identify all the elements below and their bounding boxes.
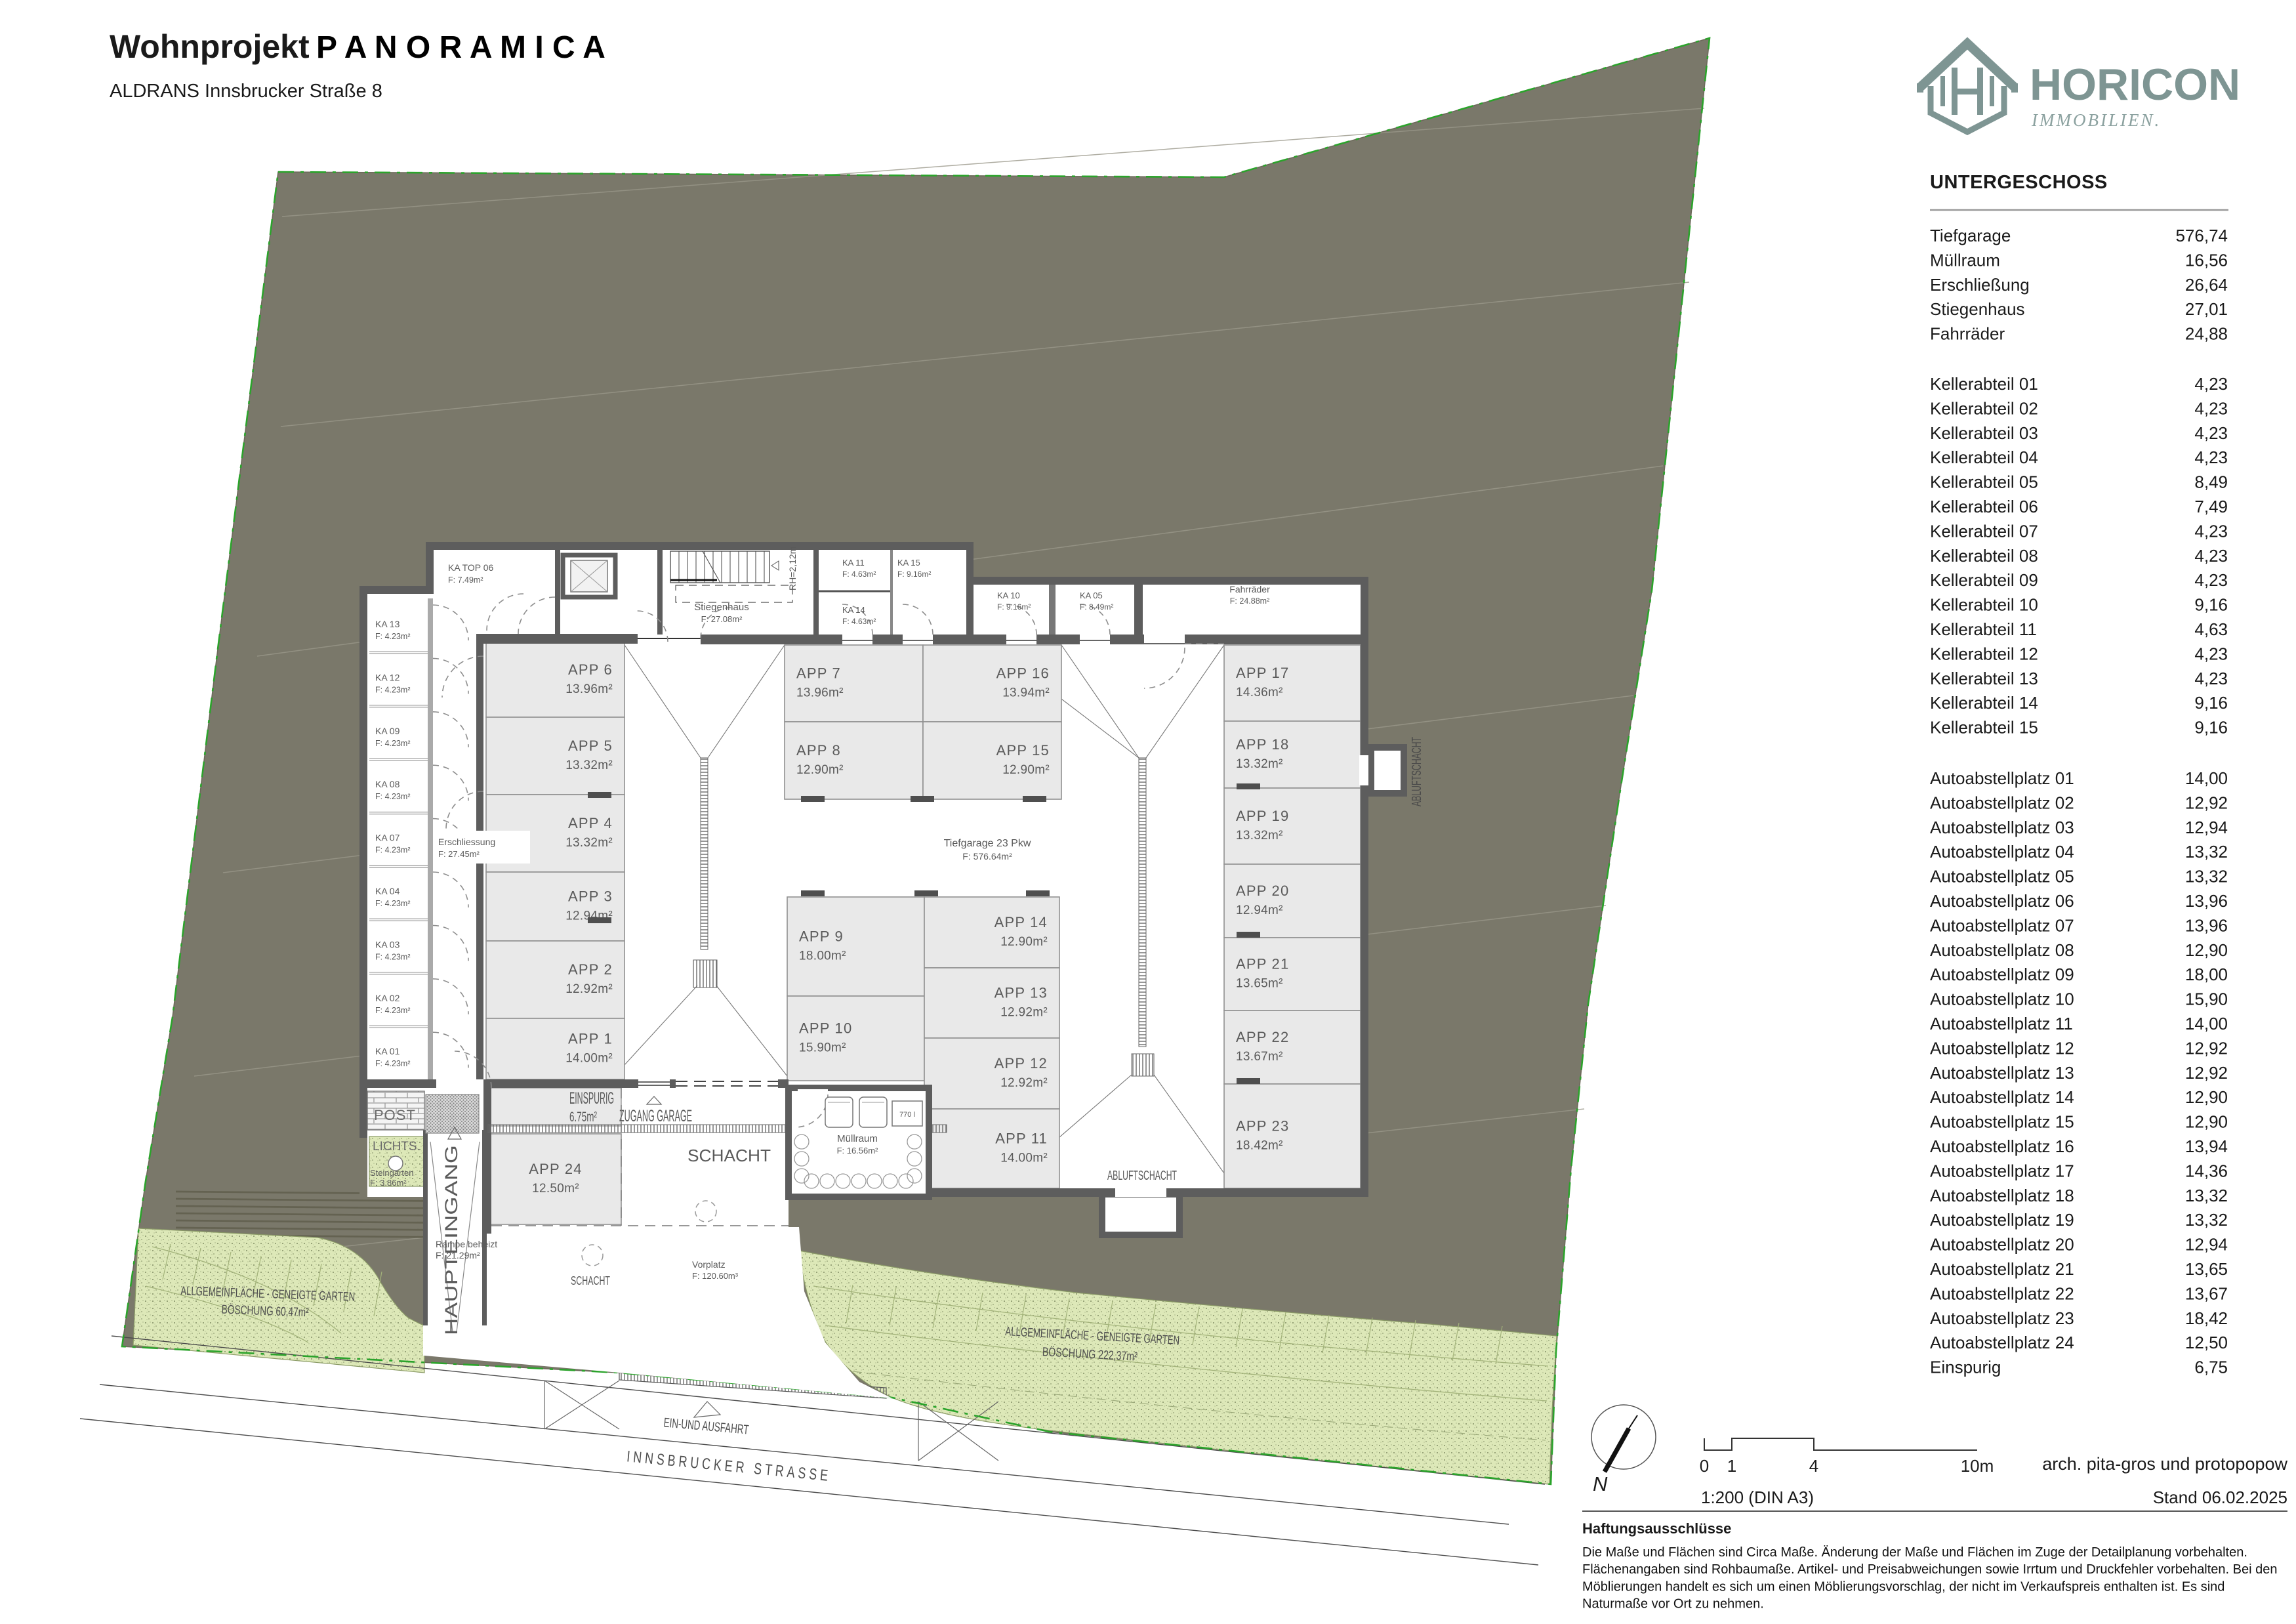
svg-text:0: 0: [1700, 1456, 1709, 1476]
svg-text:F: 9.16m²: F: 9.16m²: [997, 602, 1031, 612]
svg-text:8,49: 8,49: [2194, 472, 2228, 492]
svg-text:ABLUFTSCHACHT: ABLUFTSCHACHT: [1410, 737, 1424, 806]
svg-text:F: 576.64m²: F: 576.64m²: [962, 851, 1012, 862]
svg-text:Autoabstellplatz 09: Autoabstellplatz 09: [1930, 965, 2074, 984]
svg-text:Kellerabteil 06: Kellerabteil 06: [1930, 497, 2038, 516]
svg-text:Tiefgarage 23 Pkw: Tiefgarage 23 Pkw: [944, 838, 1031, 849]
svg-text:15.90m²: 15.90m²: [799, 1041, 846, 1055]
svg-text:I N N S B R U C K E R S T R: I N N S B R U C K E R S T R A S S E: [626, 1447, 829, 1484]
svg-text:4,23: 4,23: [2194, 398, 2228, 418]
svg-text:13,96: 13,96: [2185, 915, 2228, 935]
svg-text:F: 7.49m²: F: 7.49m²: [448, 575, 483, 585]
svg-text:Autoabstellplatz 04: Autoabstellplatz 04: [1930, 842, 2074, 862]
svg-text:APP 20: APP 20: [1236, 883, 1289, 899]
svg-text:ALDRANS Innsbrucker Straße 8: ALDRANS Innsbrucker Straße 8: [110, 81, 382, 102]
svg-text:HORICON: HORICON: [2030, 60, 2240, 110]
svg-text:Steingarten: Steingarten: [370, 1168, 414, 1178]
svg-text:F: 16.56m²: F: 16.56m²: [837, 1146, 879, 1156]
svg-text:APP 19: APP 19: [1236, 808, 1289, 824]
svg-text:12,92: 12,92: [2185, 1063, 2228, 1083]
svg-text:APP 15: APP 15: [996, 742, 1050, 759]
svg-text:1: 1: [1727, 1456, 1736, 1476]
svg-text:RH=2,12m: RH=2,12m: [787, 547, 798, 591]
svg-text:12,92: 12,92: [2185, 793, 2228, 812]
svg-text:Autoabstellplatz 14: Autoabstellplatz 14: [1930, 1087, 2074, 1107]
svg-text:Müllraum: Müllraum: [837, 1133, 878, 1144]
svg-text:Die Maße und Flächen sind Circ: Die Maße und Flächen sind Circa Maße. Än…: [1582, 1545, 2247, 1560]
svg-text:13,96: 13,96: [2185, 891, 2228, 911]
svg-text:KA TOP 06: KA TOP 06: [448, 562, 493, 573]
svg-text:4,23: 4,23: [2194, 644, 2228, 663]
svg-text:KA 15: KA 15: [897, 558, 920, 568]
svg-text:4,23: 4,23: [2194, 448, 2228, 467]
svg-text:APP 21: APP 21: [1236, 956, 1289, 972]
svg-text:12,90: 12,90: [2185, 1112, 2228, 1132]
svg-text:24,88: 24,88: [2185, 324, 2228, 344]
svg-text:4,23: 4,23: [2194, 546, 2228, 566]
svg-text:F: 4.23m²: F: 4.23m²: [375, 792, 411, 801]
svg-text:F: 3.86m²: F: 3.86m²: [370, 1178, 407, 1188]
svg-text:26,64: 26,64: [2185, 275, 2228, 295]
svg-text:Autoabstellplatz 07: Autoabstellplatz 07: [1930, 915, 2074, 935]
svg-text:9,16: 9,16: [2194, 693, 2228, 713]
svg-text:Autoabstellplatz 12: Autoabstellplatz 12: [1930, 1038, 2074, 1058]
svg-text:13,32: 13,32: [2185, 1186, 2228, 1205]
svg-text:12,94: 12,94: [2185, 818, 2228, 837]
svg-text:12.92m²: 12.92m²: [1000, 1076, 1048, 1090]
svg-text:Flächenangaben sind Rohbaumaße: Flächenangaben sind Rohbaumaße. Artikel-…: [1582, 1562, 2278, 1577]
svg-text:Autoabstellplatz 17: Autoabstellplatz 17: [1930, 1161, 2074, 1180]
svg-text:APP 2: APP 2: [568, 961, 613, 978]
svg-text:Autoabstellplatz 08: Autoabstellplatz 08: [1930, 940, 2074, 960]
svg-text:APP 9: APP 9: [799, 928, 844, 945]
svg-text:Autoabstellplatz 16: Autoabstellplatz 16: [1930, 1136, 2074, 1156]
svg-text:UNTERGESCHOSS: UNTERGESCHOSS: [1930, 172, 2108, 193]
svg-text:KA 13: KA 13: [375, 619, 400, 629]
svg-text:14.00m²: 14.00m²: [1000, 1152, 1048, 1165]
svg-text:P A N O R A M I C A: P A N O R A M I C A: [316, 30, 605, 65]
svg-text:12.90m²: 12.90m²: [1002, 763, 1050, 777]
svg-text:Kellerabteil 02: Kellerabteil 02: [1930, 398, 2038, 418]
svg-text:KA 09: KA 09: [375, 726, 400, 736]
svg-text:Naturmaße vor Ort zu nehmen.: Naturmaße vor Ort zu nehmen.: [1582, 1597, 1764, 1612]
svg-text:14,36: 14,36: [2185, 1161, 2228, 1180]
svg-text:4,23: 4,23: [2194, 570, 2228, 590]
svg-text:APP 12: APP 12: [994, 1055, 1048, 1072]
svg-text:Rampe beheizt: Rampe beheizt: [436, 1239, 497, 1249]
svg-text:Autoabstellplatz 20: Autoabstellplatz 20: [1930, 1235, 2074, 1255]
svg-text:Autoabstellplatz 23: Autoabstellplatz 23: [1930, 1308, 2074, 1328]
svg-text:Einspurig: Einspurig: [1930, 1358, 2001, 1377]
svg-text:APP 23: APP 23: [1236, 1118, 1289, 1135]
svg-text:ABLUFTSCHACHT: ABLUFTSCHACHT: [1107, 1169, 1177, 1183]
svg-text:APP 4: APP 4: [568, 815, 613, 831]
svg-text:APP 17: APP 17: [1236, 665, 1289, 681]
svg-text:13.94m²: 13.94m²: [1002, 686, 1050, 700]
svg-text:F: 4.23m²: F: 4.23m²: [375, 1059, 411, 1068]
svg-text:7,49: 7,49: [2194, 497, 2228, 516]
svg-text:Autoabstellplatz 21: Autoabstellplatz 21: [1930, 1259, 2074, 1279]
svg-text:14.36m²: 14.36m²: [1236, 686, 1283, 699]
svg-text:13.96m²: 13.96m²: [565, 682, 613, 696]
svg-text:12,50: 12,50: [2185, 1333, 2228, 1352]
svg-text:F: 120.60m³: F: 120.60m³: [692, 1271, 739, 1281]
svg-text:Kellerabteil 01: Kellerabteil 01: [1930, 374, 2038, 394]
svg-text:Kellerabteil 14: Kellerabteil 14: [1930, 693, 2038, 713]
svg-text:Kellerabteil 10: Kellerabteil 10: [1930, 595, 2038, 615]
svg-text:Autoabstellplatz 02: Autoabstellplatz 02: [1930, 793, 2074, 812]
svg-text:APP 24: APP 24: [529, 1161, 582, 1177]
svg-text:9,16: 9,16: [2194, 718, 2228, 738]
svg-text:9,16: 9,16: [2194, 595, 2228, 615]
svg-text:APP 18: APP 18: [1236, 736, 1289, 753]
svg-text:Kellerabteil 04: Kellerabteil 04: [1930, 448, 2038, 467]
svg-text:N: N: [1593, 1472, 1608, 1495]
svg-text:Fahrräder: Fahrräder: [1930, 324, 2005, 344]
svg-text:4: 4: [1809, 1456, 1818, 1476]
svg-text:13,32: 13,32: [2185, 1210, 2228, 1230]
svg-text:KA 01: KA 01: [375, 1046, 400, 1056]
svg-text:KA 03: KA 03: [375, 939, 400, 949]
svg-text:KA 12: KA 12: [375, 672, 400, 682]
svg-text:Möblierungen handelt es sich u: Möblierungen handelt es sich um einen Mö…: [1582, 1579, 2224, 1594]
svg-text:1:200 (DIN A3): 1:200 (DIN A3): [1701, 1488, 1814, 1507]
svg-text:12.50m²: 12.50m²: [532, 1182, 579, 1196]
svg-text:APP 7: APP 7: [796, 665, 841, 682]
svg-text:12.90m²: 12.90m²: [796, 763, 844, 777]
svg-text:Kellerabteil 12: Kellerabteil 12: [1930, 644, 2038, 663]
svg-text:13.32m²: 13.32m²: [1236, 757, 1283, 771]
svg-text:KA 07: KA 07: [375, 833, 400, 843]
svg-text:12,90: 12,90: [2185, 1087, 2228, 1107]
svg-text:ZUGANG GARAGE: ZUGANG GARAGE: [619, 1107, 692, 1125]
svg-text:4,23: 4,23: [2194, 669, 2228, 688]
svg-text:F: 4.23m²: F: 4.23m²: [375, 739, 411, 748]
svg-text:770 l: 770 l: [899, 1111, 915, 1119]
svg-text:Autoabstellplatz 11: Autoabstellplatz 11: [1930, 1014, 2073, 1033]
svg-text:Autoabstellplatz 10: Autoabstellplatz 10: [1930, 989, 2074, 1009]
svg-text:Autoabstellplatz 03: Autoabstellplatz 03: [1930, 818, 2074, 837]
svg-text:Autoabstellplatz 01: Autoabstellplatz 01: [1930, 768, 2074, 788]
svg-text:KA 10: KA 10: [997, 591, 1020, 600]
svg-text:Autoabstellplatz 22: Autoabstellplatz 22: [1930, 1283, 2074, 1303]
svg-text:F: 4.23m²: F: 4.23m²: [375, 632, 411, 641]
svg-text:SCHACHT: SCHACHT: [571, 1274, 610, 1287]
svg-text:12,94: 12,94: [2185, 1235, 2228, 1255]
svg-text:13,94: 13,94: [2185, 1136, 2228, 1156]
svg-text:APP 16: APP 16: [996, 665, 1050, 682]
svg-text:13.96m²: 13.96m²: [796, 686, 844, 700]
svg-text:Autoabstellplatz 19: Autoabstellplatz 19: [1930, 1210, 2074, 1230]
svg-text:14.00m²: 14.00m²: [565, 1052, 613, 1066]
svg-text:13.67m²: 13.67m²: [1236, 1050, 1283, 1064]
svg-text:4,23: 4,23: [2194, 521, 2228, 541]
svg-text:APP 1: APP 1: [568, 1031, 613, 1047]
svg-text:4,23: 4,23: [2194, 423, 2228, 443]
svg-text:F: 8.49m²: F: 8.49m²: [1080, 602, 1113, 612]
svg-text:4,63: 4,63: [2194, 619, 2228, 639]
svg-text:Erschließung: Erschließung: [1930, 275, 2030, 295]
svg-text:6.75m²: 6.75m²: [569, 1110, 597, 1125]
svg-text:arch. pita-gros und protopopow: arch. pita-gros und protopopow: [2042, 1454, 2287, 1474]
svg-text:F: 4.23m²: F: 4.23m²: [375, 952, 411, 961]
svg-text:KA 02: KA 02: [375, 993, 400, 1003]
svg-text:Wohnprojekt: Wohnprojekt: [110, 28, 310, 65]
svg-text:KA 08: KA 08: [375, 779, 400, 789]
svg-text:IMMOBILIEN.: IMMOBILIEN.: [2031, 110, 2161, 130]
svg-text:APP 13: APP 13: [994, 985, 1048, 1001]
svg-text:LICHTS.: LICHTS.: [373, 1140, 420, 1154]
svg-text:16,56: 16,56: [2185, 250, 2228, 270]
svg-text:13,65: 13,65: [2185, 1259, 2228, 1279]
svg-text:KA 11: KA 11: [842, 558, 865, 568]
svg-text:APP 3: APP 3: [568, 888, 613, 905]
svg-text:KA 05: KA 05: [1080, 591, 1103, 600]
svg-text:F: 4.63m²: F: 4.63m²: [842, 570, 876, 579]
svg-text:KA 04: KA 04: [375, 886, 400, 896]
svg-text:Müllraum: Müllraum: [1930, 250, 2000, 270]
svg-text:Autoabstellplatz 15: Autoabstellplatz 15: [1930, 1112, 2074, 1132]
svg-text:Autoabstellplatz 24: Autoabstellplatz 24: [1930, 1333, 2074, 1352]
svg-text:F: 27.08m²: F: 27.08m²: [701, 614, 743, 624]
svg-text:18,00: 18,00: [2185, 965, 2228, 984]
svg-text:10m: 10m: [1961, 1456, 1994, 1476]
svg-text:Tiefgarage: Tiefgarage: [1930, 226, 2011, 245]
svg-text:18.00m²: 18.00m²: [799, 949, 846, 963]
svg-text:APP 6: APP 6: [568, 661, 613, 678]
svg-text:F: 4.23m²: F: 4.23m²: [375, 685, 411, 694]
svg-text:F: 4.23m²: F: 4.23m²: [375, 899, 411, 908]
svg-text:F: 24.88m²: F: 24.88m²: [1230, 596, 1269, 606]
svg-text:EIN-UND AUSFAHRT: EIN-UND AUSFAHRT: [663, 1415, 749, 1437]
svg-text:Kellerabteil 15: Kellerabteil 15: [1930, 718, 2038, 738]
svg-text:SCHACHT: SCHACHT: [687, 1146, 771, 1165]
svg-text:Erschliessung: Erschliessung: [438, 837, 495, 847]
svg-text:Kellerabteil 03: Kellerabteil 03: [1930, 423, 2038, 443]
svg-text:F: 9.16m²: F: 9.16m²: [897, 570, 931, 579]
svg-text:Vorplatz: Vorplatz: [692, 1259, 726, 1270]
svg-text:6,75: 6,75: [2194, 1358, 2228, 1377]
svg-text:576,74: 576,74: [2175, 226, 2228, 245]
svg-text:13,67: 13,67: [2185, 1283, 2228, 1303]
svg-text:KA 14: KA 14: [842, 605, 865, 615]
svg-text:Kellerabteil 09: Kellerabteil 09: [1930, 570, 2038, 590]
svg-text:F: 27.45m²: F: 27.45m²: [438, 849, 480, 859]
svg-text:15,90: 15,90: [2185, 989, 2228, 1009]
svg-text:Kellerabteil 08: Kellerabteil 08: [1930, 546, 2038, 566]
svg-text:12,90: 12,90: [2185, 940, 2228, 960]
svg-text:F: 4.23m²: F: 4.23m²: [375, 1006, 411, 1015]
svg-text:Stand 06.02.2025: Stand 06.02.2025: [2153, 1488, 2287, 1507]
svg-text:13,32: 13,32: [2185, 842, 2228, 862]
svg-text:Stiegenhaus: Stiegenhaus: [1930, 299, 2025, 319]
svg-text:APP 22: APP 22: [1236, 1029, 1289, 1045]
svg-text:12.92m²: 12.92m²: [1000, 1006, 1048, 1020]
svg-text:POST: POST: [374, 1107, 416, 1123]
svg-text:27,01: 27,01: [2185, 299, 2228, 319]
svg-text:Autoabstellplatz 13: Autoabstellplatz 13: [1930, 1063, 2074, 1083]
svg-text:Autoabstellplatz 06: Autoabstellplatz 06: [1930, 891, 2074, 911]
svg-text:APP 5: APP 5: [568, 738, 613, 754]
svg-text:F: 4.23m²: F: 4.23m²: [375, 846, 411, 855]
svg-text:APP 14: APP 14: [994, 914, 1048, 930]
svg-text:Haftungsausschlüsse: Haftungsausschlüsse: [1582, 1520, 1731, 1537]
svg-text:Kellerabteil 11: Kellerabteil 11: [1930, 619, 2037, 639]
svg-text:12.94m²: 12.94m²: [1236, 904, 1283, 917]
svg-text:APP 11: APP 11: [995, 1131, 1048, 1147]
svg-text:Autoabstellplatz 05: Autoabstellplatz 05: [1930, 867, 2074, 886]
svg-text:18,42: 18,42: [2185, 1308, 2228, 1328]
svg-text:12.90m²: 12.90m²: [1000, 935, 1048, 949]
svg-text:18.42m²: 18.42m²: [1236, 1139, 1283, 1153]
svg-text:13.32m²: 13.32m²: [565, 759, 613, 772]
svg-text:Autoabstellplatz 18: Autoabstellplatz 18: [1930, 1186, 2074, 1205]
svg-text:14,00: 14,00: [2185, 768, 2228, 788]
svg-text:13,32: 13,32: [2185, 867, 2228, 886]
svg-text:12,92: 12,92: [2185, 1038, 2228, 1058]
svg-text:Kellerabteil 07: Kellerabteil 07: [1930, 521, 2038, 541]
svg-text:Kellerabteil 05: Kellerabteil 05: [1930, 472, 2038, 492]
svg-text:F: 4.63m²: F: 4.63m²: [842, 617, 876, 626]
svg-text:4,23: 4,23: [2194, 374, 2228, 394]
svg-text:F: 21.29m²: F: 21.29m²: [436, 1250, 480, 1260]
svg-text:14,00: 14,00: [2185, 1014, 2228, 1033]
svg-text:APP 10: APP 10: [799, 1020, 852, 1037]
svg-text:Stiegenhaus: Stiegenhaus: [694, 602, 748, 613]
svg-text:APP 8: APP 8: [796, 742, 841, 759]
svg-text:Fahrräder: Fahrräder: [1229, 584, 1270, 594]
svg-text:13.65m²: 13.65m²: [1236, 977, 1283, 991]
svg-text:13.32m²: 13.32m²: [1236, 829, 1283, 843]
svg-text:12.92m²: 12.92m²: [565, 982, 613, 996]
svg-text:Kellerabteil 13: Kellerabteil 13: [1930, 669, 2038, 688]
svg-text:EINSPURIG: EINSPURIG: [569, 1089, 614, 1108]
svg-text:13.32m²: 13.32m²: [565, 836, 613, 850]
